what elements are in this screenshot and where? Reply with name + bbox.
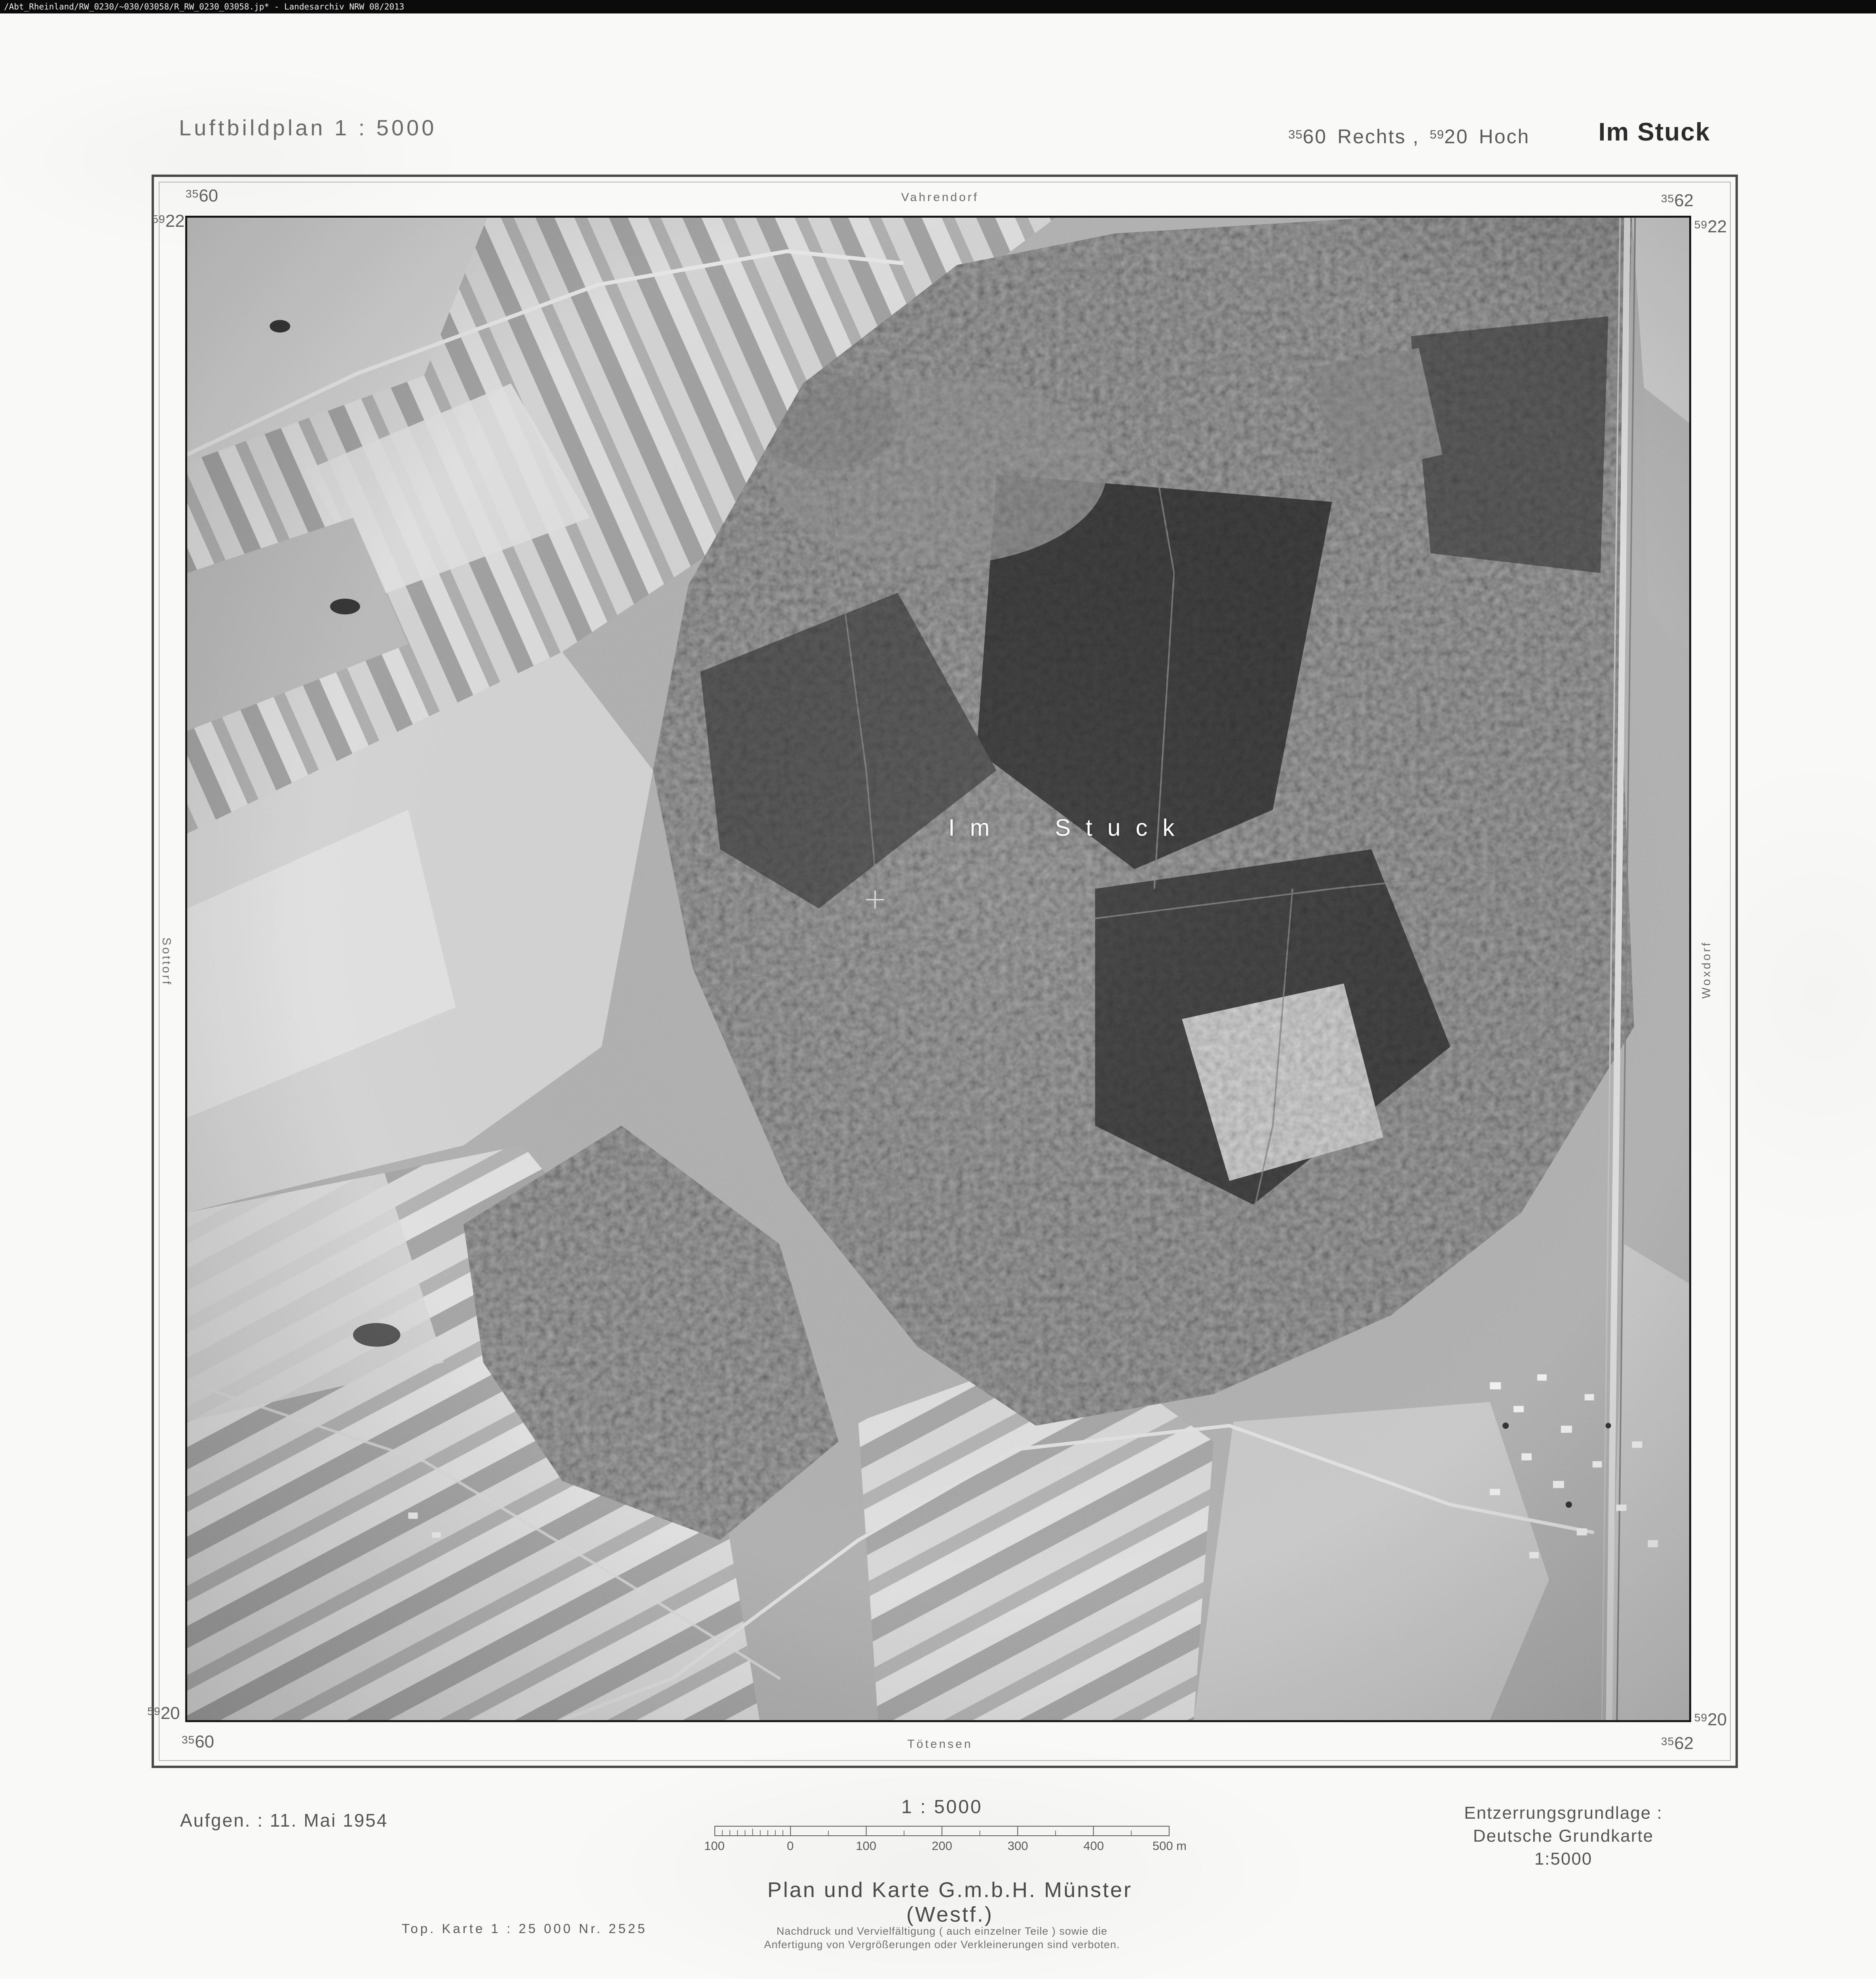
copyright-note: Nachdruck und Vervielfältigung ( auch ei… xyxy=(744,1924,1140,1951)
copyright-line1: Nachdruck und Vervielfältigung ( auch ei… xyxy=(744,1924,1140,1938)
survey-date: Aufgen. : 11. Mai 1954 xyxy=(180,1810,388,1831)
scale-tick-label: 500 m xyxy=(1153,1839,1187,1853)
scale-tick-label: 100 xyxy=(704,1839,725,1853)
rectification-line2: Deutsche Grundkarte 1:5000 xyxy=(1460,1825,1666,1871)
rechts-value: 60 xyxy=(1303,125,1327,148)
grid-label-bottom-right-northing: 5920 xyxy=(1691,1710,1730,1730)
scale-bar: 100 0 100 200 300 400 500 m xyxy=(714,1825,1170,1853)
topo-map-reference: Top. Karte 1 : 25 000 Nr. 2525 xyxy=(402,1921,647,1936)
hoch-superscript: 59 xyxy=(1430,127,1444,141)
scale-tick-label: 300 xyxy=(1008,1839,1028,1853)
sheet-name-title: Im Stuck xyxy=(1583,117,1726,146)
grid-label-top-right-easting: 3562 xyxy=(1654,191,1701,211)
scale-tick-label: 100 xyxy=(856,1839,876,1853)
hoch-label: Hoch xyxy=(1479,125,1530,148)
scale-bar-labels: 100 0 100 200 300 400 500 m xyxy=(714,1839,1170,1853)
scale-bar-graphic xyxy=(714,1825,1170,1837)
sheet-coordinates: 3560Rechts ,5920Hoch xyxy=(1288,125,1530,148)
hoch-value: 20 xyxy=(1444,125,1469,148)
grid-label-bottom-left-northing: 5920 xyxy=(145,1704,182,1723)
copyright-line2: Anfertigung von Vergrößerungen oder Verk… xyxy=(744,1938,1140,1951)
scale-tick-label: 0 xyxy=(787,1839,794,1853)
grid-label-top-left-northing: 5922 xyxy=(150,211,187,231)
rectification-note: Entzerrungsgrundlage : Deutsche Grundkar… xyxy=(1460,1802,1666,1871)
scale-tick-label: 200 xyxy=(932,1839,952,1853)
rechts-label: Rechts , xyxy=(1337,125,1419,148)
aerial-photo-image xyxy=(187,218,1689,1720)
grid-label-bottom-right-easting: 3562 xyxy=(1654,1734,1701,1753)
grid-label-top-right-northing: 5922 xyxy=(1691,217,1730,237)
rechts-superscript: 35 xyxy=(1288,127,1303,141)
neighbor-sheet-right: Woxdorf xyxy=(1700,926,1713,1013)
viewer-file-path: /Abt_Rheinland/RW_0230/~030/03058/R_RW_0… xyxy=(4,2,404,11)
grid-label-top-left-easting: 3560 xyxy=(178,186,226,206)
neighbor-sheet-bottom: Tötensen xyxy=(891,1738,989,1751)
series-title: Luftbildplan 1 : 5000 xyxy=(179,115,437,141)
aerial-photo: Im Stuck xyxy=(185,216,1691,1722)
viewer-titlebar: /Abt_Rheinland/RW_0230/~030/03058/R_RW_0… xyxy=(0,0,1876,13)
neighbor-sheet-top: Vahrendorf xyxy=(891,191,989,204)
neighbor-sheet-left: Sottorf xyxy=(159,918,173,1005)
grid-cross-mark xyxy=(866,891,884,909)
scale-tick-label: 400 xyxy=(1083,1839,1104,1853)
photo-place-label: Im Stuck xyxy=(948,814,1189,841)
screenshot-root: /Abt_Rheinland/RW_0230/~030/03058/R_RW_0… xyxy=(0,0,1876,1979)
scale-ratio-label: 1 : 5000 xyxy=(714,1796,1170,1818)
rectification-line1: Entzerrungsgrundlage : xyxy=(1460,1802,1666,1825)
publisher-imprint: Plan und Karte G.m.b.H. Münster (Westf.) xyxy=(728,1878,1172,1927)
grid-label-bottom-left-easting: 3560 xyxy=(174,1732,222,1752)
